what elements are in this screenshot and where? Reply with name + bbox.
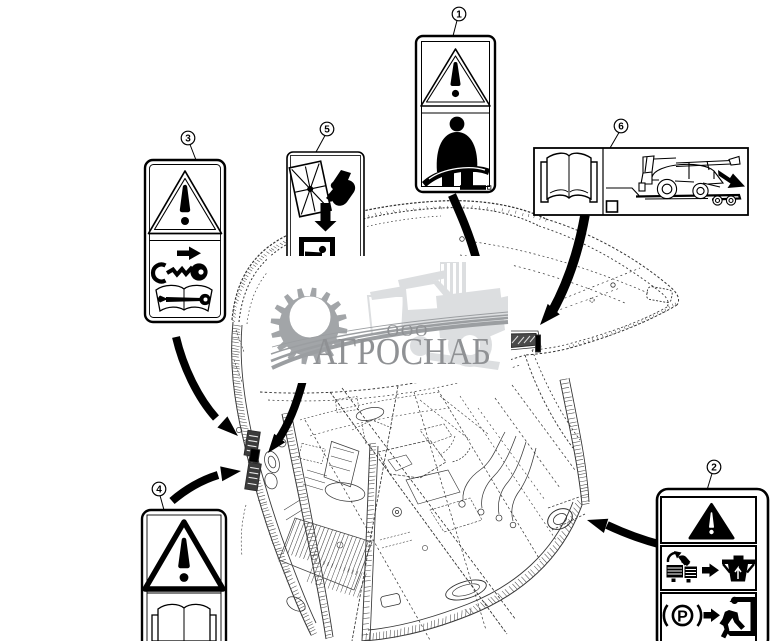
svg-text:АГРОСНАБ: АГРОСНАБ	[313, 331, 491, 373]
svg-text:2: 2	[711, 463, 717, 474]
svg-text:1: 1	[456, 10, 462, 21]
svg-text:6: 6	[618, 122, 624, 133]
svg-text:5: 5	[324, 125, 330, 136]
svg-text:3: 3	[185, 134, 191, 145]
svg-text:4: 4	[156, 485, 162, 496]
svg-text:P: P	[677, 609, 688, 626]
